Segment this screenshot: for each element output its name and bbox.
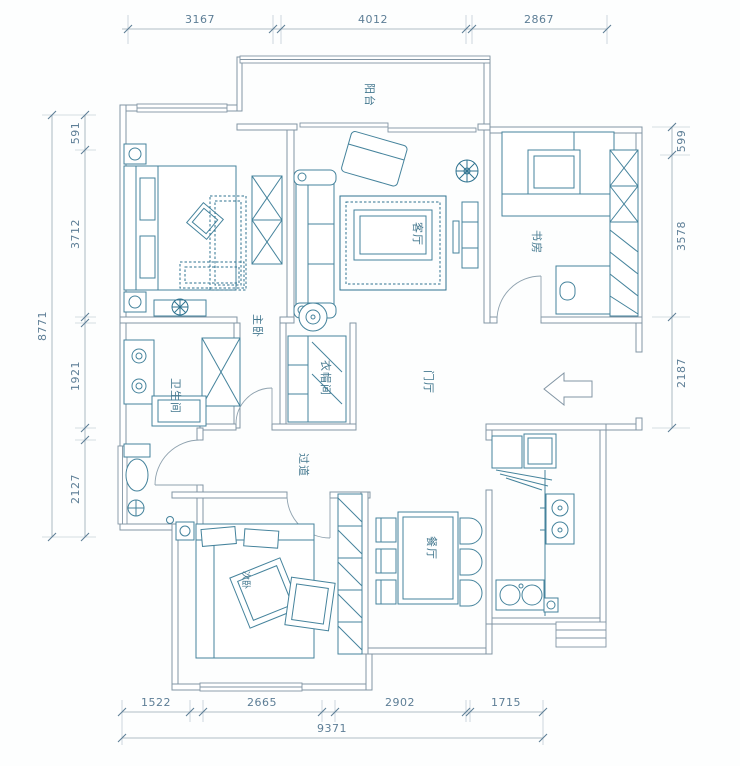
room-master-bedroom: 主卧 <box>124 144 282 338</box>
window-left-bath <box>118 446 127 524</box>
bath-cabinet-icon <box>202 338 240 406</box>
tatami-bed-icon <box>502 132 614 216</box>
balcony-sliding-door <box>300 123 476 132</box>
label-cloakroom: 衣帽间 <box>319 360 333 396</box>
window-balcony-top <box>240 56 490 63</box>
label-corridor: 过道 <box>297 453 311 477</box>
room-cloakroom: 衣帽间 <box>288 336 346 422</box>
wardrobe-icon <box>252 176 282 264</box>
desk-icon <box>556 266 610 314</box>
bedroom2-wardrobe-icon <box>338 494 362 654</box>
dim-left-total: 8771 <box>36 311 49 341</box>
label-bedroom2: 次卧 <box>240 571 252 589</box>
dim-left-2: 3712 <box>69 219 82 249</box>
door-shower-room <box>155 440 200 485</box>
dim-left-3: 1921 <box>69 361 82 391</box>
room-balcony: 阳台 <box>363 83 377 107</box>
window-kitchen-bay <box>556 622 606 647</box>
dim-right-2: 3578 <box>675 221 688 251</box>
room-hall: 门厅 <box>422 370 592 405</box>
dining-chairs-right <box>460 518 482 606</box>
dim-bottom-1: 1522 <box>141 696 171 709</box>
entry-arrow-icon <box>544 373 592 405</box>
dim-top-2: 4012 <box>358 13 388 26</box>
study-wardrobe-icon <box>610 150 638 316</box>
room-living: 客厅 <box>294 131 478 331</box>
dim-bottom-4: 1715 <box>491 696 521 709</box>
label-master-bedroom: 主卧 <box>251 314 264 338</box>
room-kitchen <box>492 434 574 616</box>
window-master-top <box>137 104 227 112</box>
armchair-icon <box>341 131 408 187</box>
side-table-icon <box>299 303 327 331</box>
door-master-passage <box>236 388 272 424</box>
dim-left-4: 2127 <box>69 474 82 504</box>
label-study: 书房 <box>530 230 543 254</box>
dim-left-1: 591 <box>69 122 82 145</box>
plant-icon <box>456 160 478 182</box>
bed2-icon <box>196 524 335 658</box>
dimension-chain-bottom: 1522 2665 2902 1715 9371 <box>118 696 547 742</box>
dim-right-1: 599 <box>675 130 688 153</box>
nightstand-icon <box>176 522 194 540</box>
room-bedroom2: 次卧 <box>176 494 362 658</box>
floor-plan-drawing: 3167 4012 2867 1522 2665 2902 1715 9371 … <box>0 0 740 766</box>
floor-plan-canvas: 3167 4012 2867 1522 2665 2902 1715 9371 … <box>0 0 740 766</box>
dim-top-1: 3167 <box>185 13 215 26</box>
tv-stand-icon <box>453 202 478 268</box>
dimension-chain-left: 591 3712 1921 2127 8771 <box>36 111 89 541</box>
dim-right-3: 2187 <box>675 358 688 388</box>
double-sink-icon <box>496 580 544 610</box>
drain-icon <box>544 598 558 612</box>
dimension-chain-right: 599 3578 2187 <box>668 123 688 432</box>
room-study: 书房 <box>502 132 638 316</box>
floor-drain-icon <box>167 517 174 524</box>
dim-top-3: 2867 <box>524 13 554 26</box>
nightstand-icon <box>124 292 146 312</box>
label-balcony: 阳台 <box>363 83 377 107</box>
nightstand-icon <box>124 144 146 164</box>
dining-chairs-left <box>376 518 396 604</box>
dim-bottom-2: 2665 <box>247 696 277 709</box>
dim-bottom-3: 2902 <box>385 696 415 709</box>
sofa-icon <box>294 170 336 318</box>
door-study <box>497 276 541 320</box>
label-living: 客厅 <box>411 222 425 246</box>
dimension-chain-top: 3167 4012 2867 <box>122 13 611 33</box>
label-dining: 餐厅 <box>425 536 439 560</box>
dim-bottom-total: 9371 <box>317 722 347 735</box>
cloak-shelving-icon <box>288 336 346 422</box>
room-corridor: 过道 <box>297 453 311 477</box>
toilet-icon <box>124 444 150 491</box>
window-bedroom2-bottom <box>200 683 302 691</box>
room-dining: 餐厅 <box>376 512 482 606</box>
fridge-cabinet-icon <box>492 434 556 490</box>
shower-head-icon <box>128 500 144 516</box>
label-bathroom: 卫生间 <box>169 378 183 414</box>
bed-icon <box>124 166 236 290</box>
vanity-sink-icon <box>124 340 154 404</box>
label-hall: 门厅 <box>422 370 436 394</box>
plant-cabinet-icon <box>154 299 206 316</box>
